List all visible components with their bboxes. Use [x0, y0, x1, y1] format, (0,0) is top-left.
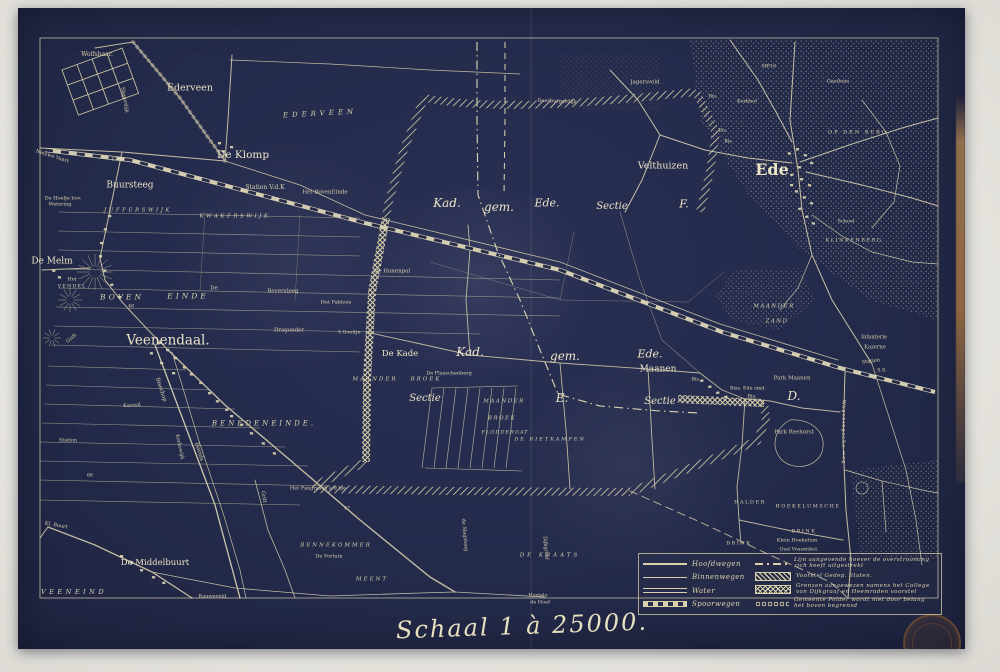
legend-item-spoorwegen: Spoorwegen	[643, 600, 747, 608]
map-legend: Hoofdwegen Binnenwegen Water Spoorwegen …	[638, 553, 942, 615]
forest-stipple	[560, 40, 938, 560]
rail-symbol	[643, 601, 687, 607]
legend-label: Gemeente Polder wordt niet door belang h…	[794, 598, 937, 610]
allotment-grid	[62, 48, 139, 115]
legend-label: Voorstel Gedep. Staten.	[796, 574, 872, 580]
road-main-symbol	[643, 563, 687, 565]
legend-label: Lijn aangevende hoever de overstrooming …	[794, 558, 937, 570]
road-inner-symbol	[643, 577, 687, 578]
legend-item-polder: Gemeente Polder wordt niet door belang h…	[755, 598, 937, 610]
legend-label: Grenzen aangewezen namens het College va…	[796, 584, 937, 596]
binding-tape	[956, 95, 965, 483]
crosshatch-symbol	[755, 585, 791, 594]
legend-item-binnenwegen: Binnenwegen	[643, 573, 747, 581]
legend-item-hoofdwegen: Hoofdwegen	[643, 560, 747, 568]
dashdot-symbol	[755, 563, 789, 565]
hatch-symbol	[755, 572, 791, 581]
legend-item-voorstel: Voorstel Gedep. Staten.	[755, 572, 937, 581]
floddergat-strips	[422, 386, 522, 471]
scanned-map-photo: Wolfshaar.EderveenEDERVEENDe KlompStatio…	[0, 0, 1000, 672]
legend-item-grenzen: Grenzen aangewezen namens het College va…	[755, 584, 937, 596]
legend-label: Spoorwegen	[692, 600, 740, 608]
chain-symbol	[755, 601, 789, 607]
legend-right-column: Lijn aangevende hoever de overstrooming …	[751, 554, 941, 614]
legend-left-column: Hoofdwegen Binnenwegen Water Spoorwegen	[639, 554, 751, 614]
legend-item-water: Water	[643, 587, 747, 595]
archive-stamp-ring	[912, 623, 952, 649]
legend-label: Water	[692, 587, 715, 595]
hatched-boundary-bands	[313, 92, 766, 492]
water-symbol	[643, 588, 687, 593]
legend-label: Binnenwegen	[692, 573, 745, 581]
legend-label: Hoofdwegen	[692, 560, 741, 568]
legend-item-flood-line: Lijn aangevende hoever de overstrooming …	[755, 558, 937, 570]
